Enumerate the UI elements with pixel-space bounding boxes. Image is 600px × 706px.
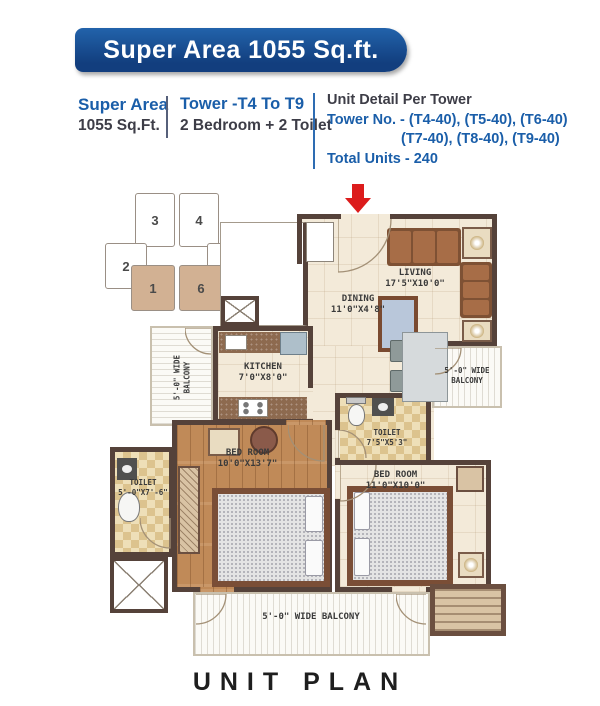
unit-detail-block: Unit Detail Per Tower Tower No. - (T4-40… [327, 91, 568, 169]
bedroom-left-pillow-icon [305, 496, 323, 532]
balcony-bottom-door-arc-left [196, 594, 227, 625]
key-plan-unit-4: 4 [179, 193, 219, 247]
kitchen-sink-icon [225, 335, 247, 350]
bedroom-right-lamp-table-icon [458, 552, 484, 578]
top-wall-left [297, 214, 341, 219]
configuration: 2 Bedroom + 2 Toilet [180, 115, 332, 136]
toilet-right-label: TOILET7'5"X5'3" [352, 428, 422, 447]
toilet-right-cistern-icon [346, 397, 366, 404]
tower-numbers-line1: Tower No. - (T4-40), (T5-40), (T6-40) [327, 111, 568, 131]
toilet-left-door-arc [140, 518, 171, 549]
service-shaft [110, 557, 168, 613]
balcony-door-gap-right [392, 587, 426, 592]
key-plan-unit-1-highlighted: 1 [131, 265, 175, 311]
corner-lamp-table-bottom-icon [462, 320, 492, 342]
key-plan-unit-6-highlighted: 6 [179, 265, 223, 311]
super-area-label: Super Area [78, 94, 168, 115]
toilet-left-basin-icon [117, 458, 137, 480]
key-plan-unit-3: 3 [135, 193, 175, 247]
bedroom-right-label: BED ROOM11'0"X10'0" [348, 470, 443, 492]
balcony-right-label: 5'-0" WIDEBALCONY [434, 366, 500, 385]
planter-box [430, 584, 506, 636]
kitchen-label: KITCHEN7'0"X8'0" [222, 362, 304, 384]
fridge-icon [280, 332, 307, 355]
super-area-block: Super Area 1055 Sq.Ft. [78, 94, 168, 136]
entry-arrow-icon [352, 184, 364, 198]
divider-2 [313, 93, 315, 169]
bedroom-right-pillow-icon-2 [354, 538, 370, 576]
top-wall-right [390, 214, 497, 219]
bedroom-right-dresser-icon [456, 466, 484, 492]
balcony-door-gap-left [200, 587, 234, 592]
unit-plan-title: UNIT PLAN [0, 668, 600, 697]
entry-door-arc [338, 219, 392, 273]
stove-icon [238, 399, 268, 417]
toilet-left-label: TOILET5'-0"X7'-6" [112, 478, 174, 497]
super-area-banner: Super Area 1055 Sq.ft. [75, 28, 407, 72]
tower-numbers-line2: (T7-40), (T8-40), (T9-40) [327, 130, 568, 150]
bedroom-left-wardrobe-icon [178, 466, 200, 554]
total-units: Total Units - 240 [327, 150, 568, 170]
divider-1 [166, 96, 168, 138]
foyer-cabinet-icon [306, 222, 334, 262]
sofa-top-icon [387, 228, 461, 266]
balcony-bottom-label: 5'-0" WIDE BALCONY [236, 612, 386, 623]
unit-plan-page: Super Area 1055 Sq.ft. Super Area 1055 S… [0, 0, 600, 706]
toilet-right-basin-icon [372, 398, 394, 416]
unit-detail-title: Unit Detail Per Tower [327, 91, 568, 111]
corner-lamp-table-top-icon [462, 227, 492, 259]
living-right-wall [492, 214, 497, 346]
balcony-bottom [193, 592, 430, 656]
toilet-right-wc-icon [348, 404, 365, 426]
balcony-left-label: 5'-0" WIDEBALCONY [173, 341, 192, 415]
service-shaft-small [221, 296, 259, 326]
banner-title: Super Area 1055 Sq.ft. [103, 36, 378, 65]
sofa-right-icon [460, 262, 492, 318]
living-label: LIVING17'5"X10'0" [370, 268, 460, 290]
tower-config-block: Tower -T4 To T9 2 Bedroom + 2 Toilet [180, 94, 332, 136]
entry-arrow-head-icon [345, 198, 371, 213]
tower-range: Tower -T4 To T9 [180, 94, 332, 115]
super-area-value: 1055 Sq.Ft. [78, 115, 168, 136]
bedroom-left-label: BED ROOM10'0"X13'7" [200, 448, 295, 470]
bedroom-left-pillow-icon-2 [305, 540, 323, 576]
dining-label: DINING11'0"X4'8" [318, 294, 398, 316]
kitchen-right-wall [308, 326, 313, 388]
foyer-left-wall [297, 214, 302, 264]
balcony-bottom-door-arc-right [396, 594, 427, 625]
